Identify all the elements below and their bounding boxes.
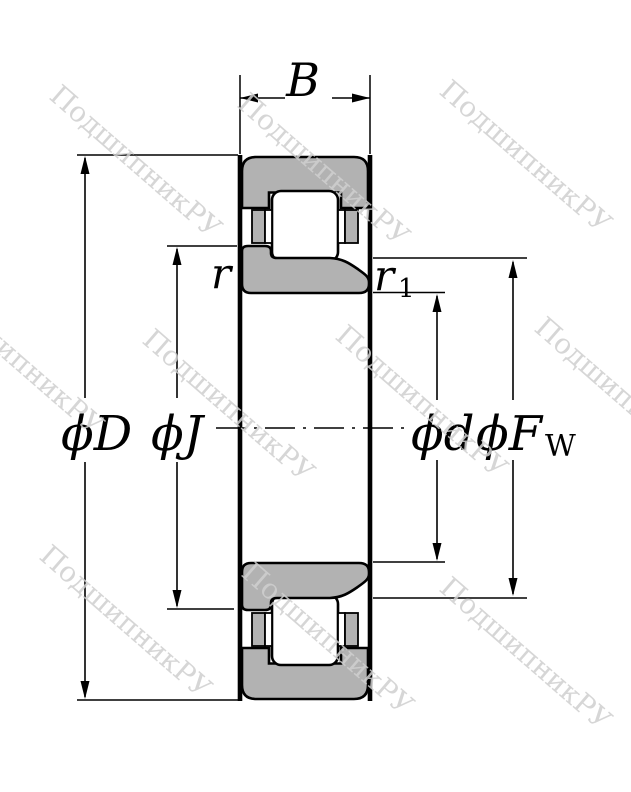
bearing-cross-section-drawing: B ϕD ϕJ ϕd ϕF W [0,0,631,792]
watermark-text: ПодшипникРУ [33,538,218,704]
label-chamfer-r1-subscript: 1 [398,274,415,304]
label-chamfer-r1-main: r [374,251,397,300]
cage-gap-top-right [338,210,345,243]
watermark-text: ПодшипникРУ [0,275,110,441]
label-rib-diameter: ϕJ [151,406,206,462]
bearing-drawing-page: B ϕD ϕJ ϕd ϕF W [0,0,631,792]
arrowhead [509,578,518,596]
watermark-text: ПодшипникРУ [433,73,618,239]
cage-bar-top-left [252,210,265,243]
watermark-text: ПодшипникРУ [433,570,618,736]
cage-bar-bottom-left [252,613,265,646]
label-width-B: B [285,53,320,107]
arrowhead [173,590,182,608]
label-chamfer-r: r [211,249,234,298]
arrowhead [509,260,518,278]
arrowhead [352,94,370,103]
arrowhead [173,247,182,265]
arrowhead [433,543,442,561]
cage-gap-bottom-left [265,613,272,646]
arrowhead [81,681,90,699]
cage-gap-top-left [265,210,272,243]
arrowhead [433,294,442,312]
arrowhead [81,156,90,174]
watermark-text: ПодшипникРУ [43,78,228,244]
label-chamfer-r1: r 1 [374,251,415,304]
label-raceway-diameter-subscript: W [545,429,576,464]
watermark-text: ПодшипникРУ [528,310,631,476]
roller-top [272,191,338,261]
